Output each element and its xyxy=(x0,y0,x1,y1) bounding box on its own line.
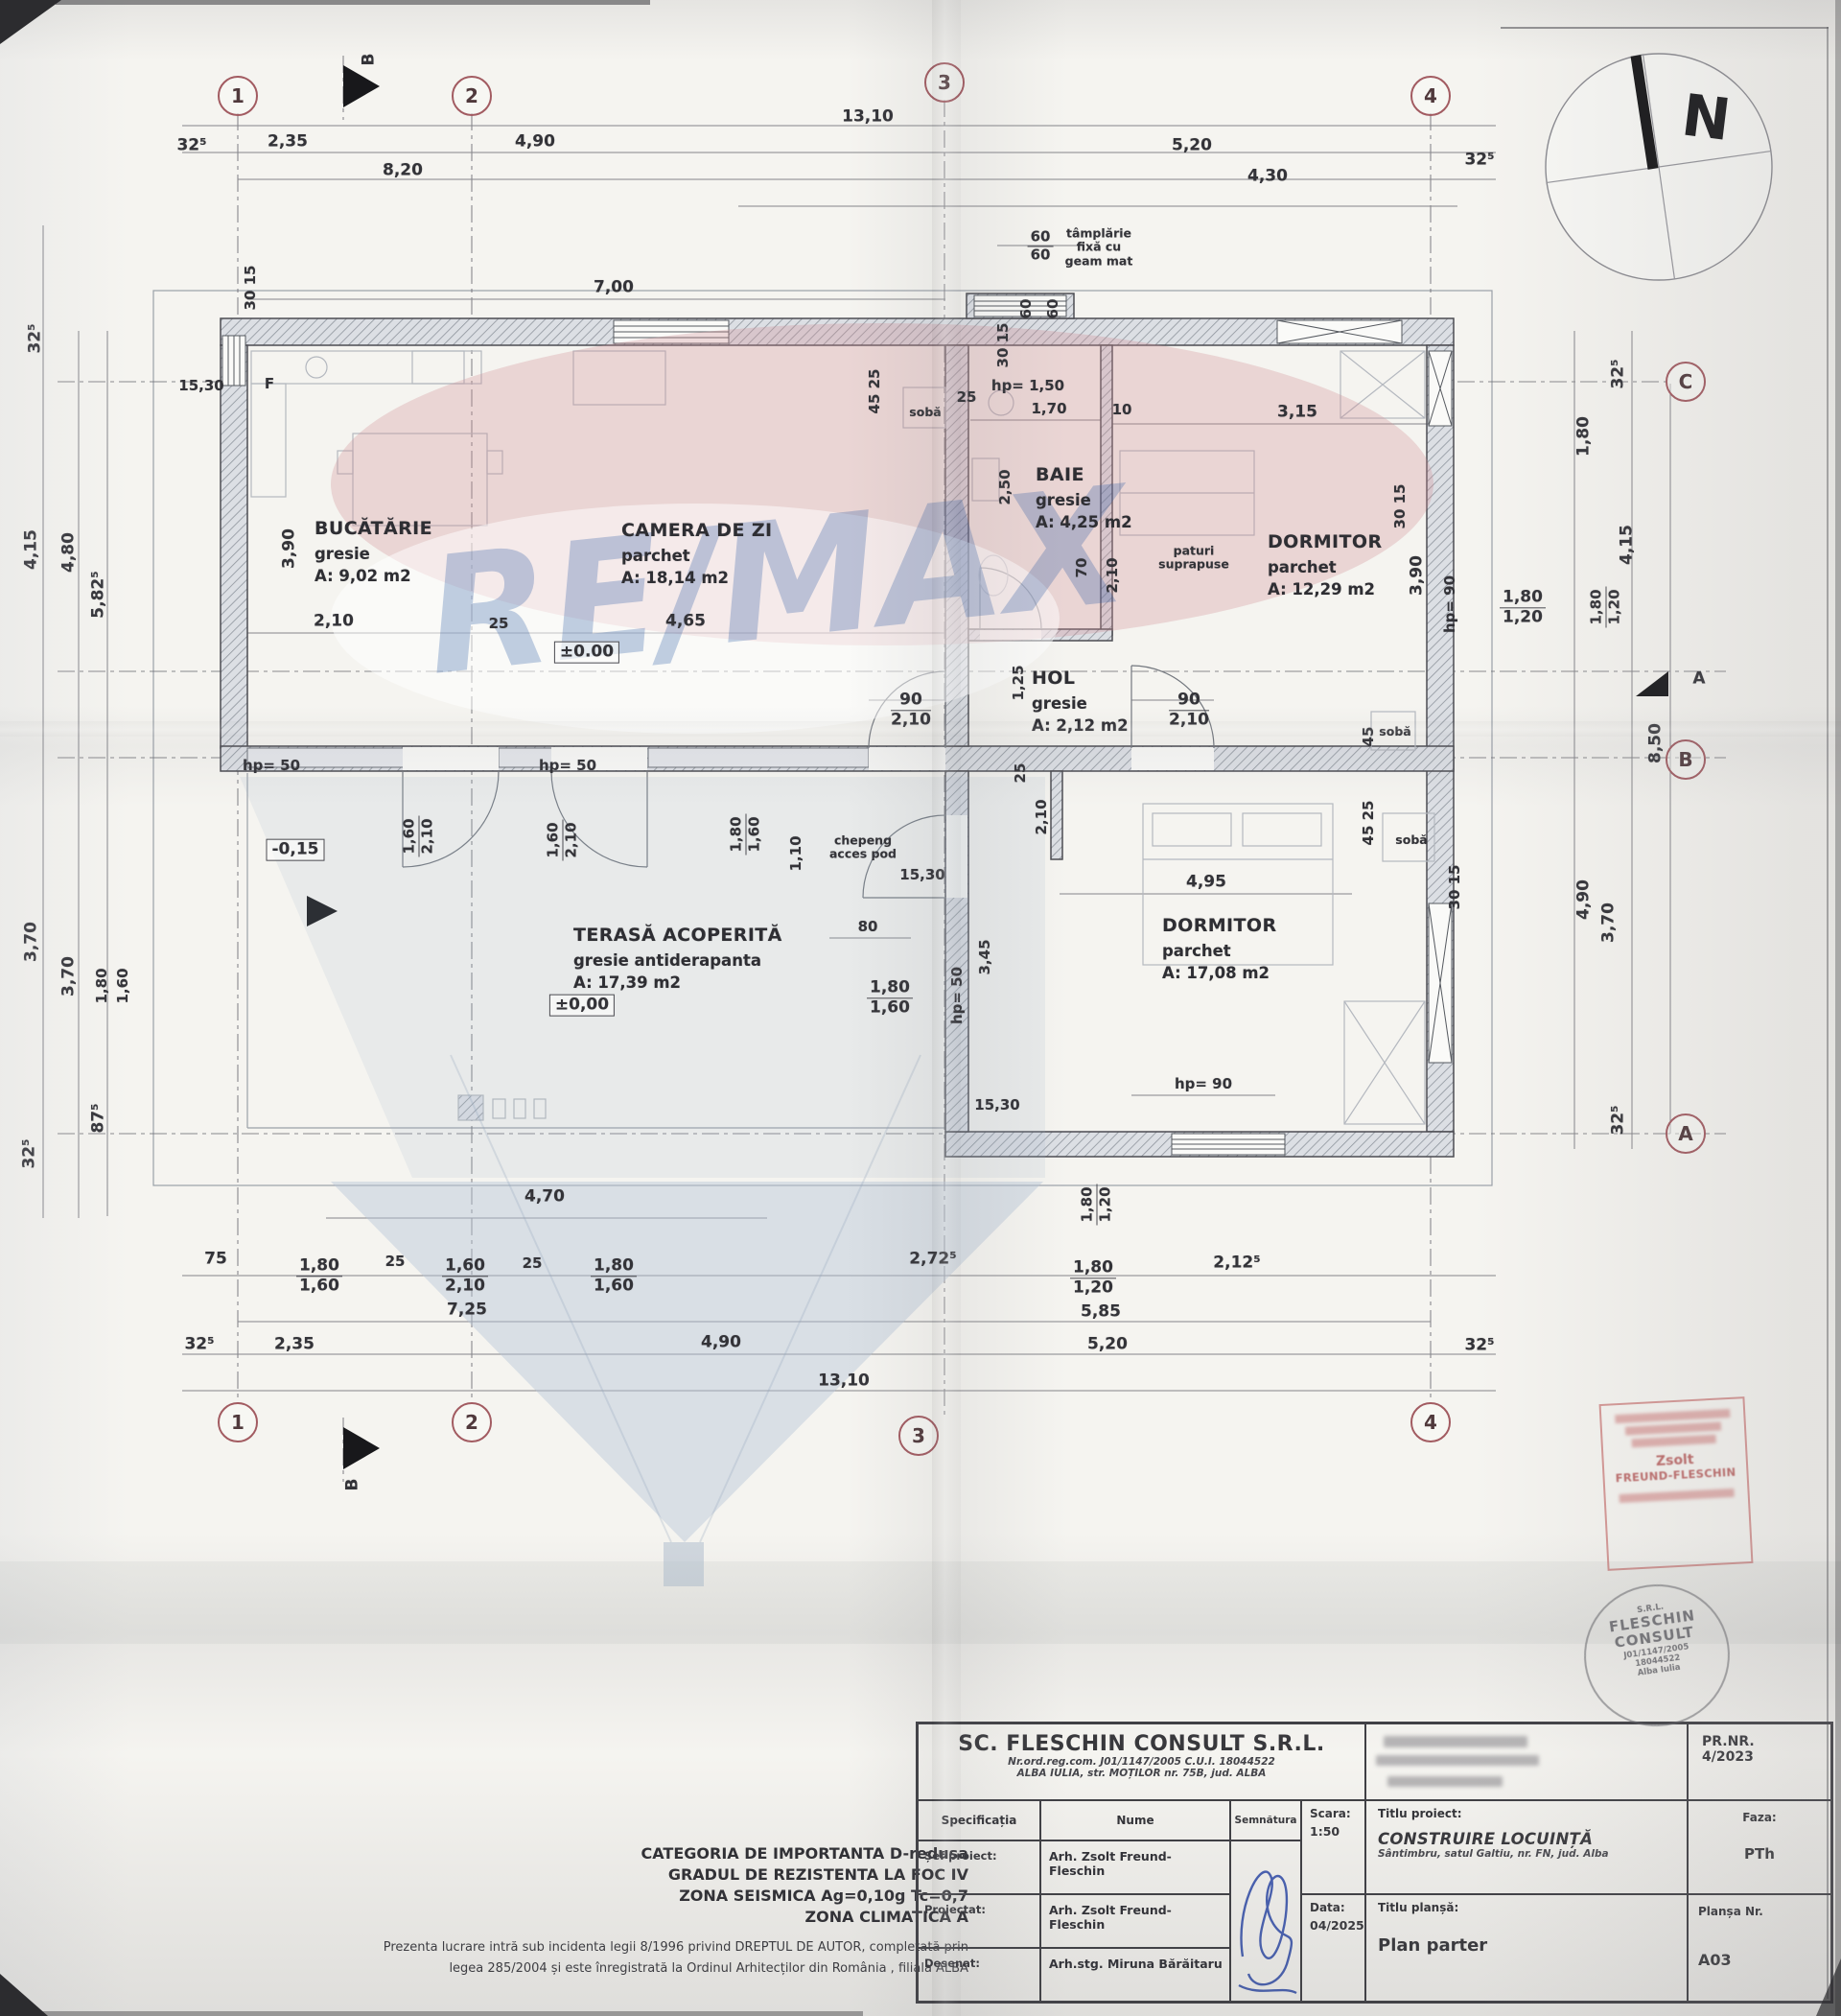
company-name: SC. FLESCHIN CONSULT S.R.L. xyxy=(919,1732,1364,1756)
scale-label: Scara: xyxy=(1310,1807,1364,1820)
dim-label: 7,00 xyxy=(594,279,634,297)
scale-value: 1:50 xyxy=(1310,1824,1364,1839)
dim-label: 3,90 xyxy=(1409,555,1427,596)
general-notes: CATEGORIA DE IMPORTANTA D-redusaGRADUL D… xyxy=(288,1843,968,1980)
dim-label: 2,10 xyxy=(1105,557,1121,593)
note-line: ZONA SEISMICA Ag=0,10g Tc=0,7 xyxy=(288,1886,968,1907)
dim-label: 32⁵ xyxy=(176,137,206,155)
dim-label: 1,80 xyxy=(94,968,110,1003)
dim-label: 25 xyxy=(1013,763,1029,784)
dim-label: 1,801,20 xyxy=(1080,1184,1113,1225)
dim-label: 3,45 xyxy=(977,939,993,974)
dim-label: 1,70 xyxy=(1031,401,1066,417)
dim-label: 2,12⁵ xyxy=(1213,1254,1260,1273)
dim-label: 4,65 xyxy=(665,613,706,631)
dim-label: 32⁵ xyxy=(27,323,45,353)
dim-label: 3,90 xyxy=(281,528,299,569)
axis-bubble-2: 2 xyxy=(452,1402,492,1442)
title-block: SC. FLESCHIN CONSULT S.R.L. Nr.ord.reg.c… xyxy=(916,1722,1833,2004)
axis-bubble-A: A xyxy=(1666,1113,1706,1154)
dim-label: 4,15 xyxy=(1619,525,1637,565)
section-marker-label: A xyxy=(1692,670,1705,689)
dim-label: 75 xyxy=(204,1251,227,1269)
dim-label: 8,50 xyxy=(1647,723,1666,763)
dim-label: 1,801,20 xyxy=(1500,588,1546,625)
dim-label: 13,10 xyxy=(818,1372,870,1391)
dim-label: 25 xyxy=(489,616,509,632)
level-label: ±0.00 xyxy=(554,642,619,664)
dim-label: 1,801,60 xyxy=(591,1256,637,1294)
axis-bubble-B: B xyxy=(1666,739,1706,780)
sheet-title-cell: Titlu planșă: Plan parter xyxy=(1365,1894,1688,2002)
dim-label: 3,70 xyxy=(23,922,41,962)
project-number: 4/2023 xyxy=(1702,1749,1830,1765)
project-number-cell: PR.NR. 4/2023 xyxy=(1688,1723,1831,1800)
dim-label: 8,20 xyxy=(383,162,423,180)
dim-label: 15,30 xyxy=(178,378,223,394)
dim-label: 7,25 xyxy=(447,1301,487,1320)
dim-label: 32⁵ xyxy=(1610,1105,1628,1135)
dim-label: 4,70 xyxy=(524,1188,565,1207)
dim-label: 1,80 xyxy=(1575,416,1594,457)
company-reg: Nr.ord.reg.com. J01/1147/2005 C.U.I. 180… xyxy=(919,1756,1364,1768)
dim-label: 30 15 xyxy=(1447,865,1463,910)
dim-label: 1,801,60 xyxy=(729,813,762,855)
axis-bubble-C: C xyxy=(1666,362,1706,402)
room-label: BUCĂTĂRIEgresieA: 9,02 m2 xyxy=(315,516,432,588)
room-label: DORMITORparchetA: 12,29 m2 xyxy=(1268,529,1382,601)
row-sef-proiect-name: Arh. Zsolt Freund-Fleschin xyxy=(1040,1840,1230,1894)
room-label: CAMERA DE ZIparchetA: 18,14 m2 xyxy=(621,518,773,590)
date-cell: Data: 04/2025 xyxy=(1301,1894,1365,2002)
axis-bubble-4: 4 xyxy=(1410,1402,1451,1442)
phase-cell: Faza: PTh xyxy=(1688,1800,1831,1894)
col-header-semnatura: Semnătura xyxy=(1230,1800,1301,1840)
dim-label: 4,90 xyxy=(1575,879,1594,920)
dim-label: 2,72⁵ xyxy=(909,1251,956,1269)
date-label: Data: xyxy=(1310,1901,1364,1914)
dim-label: 1,602,10 xyxy=(402,815,435,856)
dim-label: 2,10 xyxy=(1034,799,1050,834)
dim-label: hp= 90 xyxy=(1175,1076,1232,1092)
dim-label: 2,35 xyxy=(274,1336,315,1354)
project-address: Sântimbru, satul Galtiu, nr. FN, jud. Al… xyxy=(1378,1848,1687,1860)
dim-label: 4,80 xyxy=(60,532,79,573)
project-title: CONSTRUIRE LOCUINȚĂ xyxy=(1378,1830,1687,1848)
dim-label: 32⁵ xyxy=(184,1336,214,1354)
annotation-stove: sobă xyxy=(1379,725,1410,738)
note-line: GRADUL DE REZISTENTA LA FOC IV xyxy=(288,1864,968,1886)
dim-label: 70 xyxy=(1074,558,1090,578)
scan-edge-bottom xyxy=(0,2011,863,2016)
dim-label: hp= 50 xyxy=(949,967,966,1024)
dim-label: 4,90 xyxy=(701,1334,741,1352)
dim-label: 80 xyxy=(858,919,878,935)
signature-cell xyxy=(1230,1840,1301,2002)
dim-label: 902,10 xyxy=(891,691,931,728)
dim-label: 5,20 xyxy=(1172,137,1212,155)
dim-label: 25 xyxy=(523,1255,543,1272)
dim-label: 45 xyxy=(1361,727,1377,747)
scale-cell: Scara: 1:50 xyxy=(1301,1800,1365,1894)
room-label: DORMITORparchetA: 17,08 m2 xyxy=(1162,913,1276,985)
dim-label: hp= 1,50 xyxy=(991,378,1064,394)
axis-bubble-3: 3 xyxy=(924,62,965,103)
dim-label: 45 25 xyxy=(1361,801,1377,846)
dim-label: 30 15 xyxy=(243,266,259,311)
section-marker-label: B xyxy=(344,1479,362,1491)
axis-bubble-4: 4 xyxy=(1410,76,1451,116)
scan-edge-right xyxy=(1835,0,1841,2016)
notes-bold-lines: CATEGORIA DE IMPORTANTA D-redusaGRADUL D… xyxy=(288,1843,968,1928)
dim-label: 10 xyxy=(1112,402,1132,418)
dim-label: 3,70 xyxy=(1600,903,1619,943)
dim-label: 25 xyxy=(385,1254,406,1270)
dim-label: 5,85 xyxy=(1081,1303,1121,1322)
company-address: ALBA IULIA, str. MOȚILOR nr. 75B, jud. A… xyxy=(919,1768,1364,1779)
dim-label: 1,60 xyxy=(115,968,131,1003)
scanned-floor-plan-sheet: RE/MAX N 13,1032⁵2,354,905,2032⁵8,204,30… xyxy=(0,0,1841,2016)
dim-label: 1,801,20 xyxy=(1070,1258,1116,1296)
sheet-number: A03 xyxy=(1698,1951,1830,1969)
dim-label: 1,801,60 xyxy=(296,1256,342,1294)
annotation-window-note: tâmplăriefixă cugeam mat xyxy=(1065,226,1133,268)
dim-label: hp= 50 xyxy=(539,758,596,774)
row-sef-proiect-role: Șef proiect: xyxy=(918,1840,1040,1894)
architect-stamp: Zsolt FREUND-FLESCHIN xyxy=(1599,1396,1754,1571)
dim-label: 2,50 xyxy=(997,469,1014,504)
dim-label: 1,602,10 xyxy=(546,819,579,860)
dim-label: 87⁵ xyxy=(90,1103,108,1133)
project-title-cell: Titlu proiect: CONSTRUIRE LOCUINȚĂ Sânti… xyxy=(1365,1800,1688,1894)
dim-label: 60 xyxy=(1018,299,1035,319)
annotation-bunk-beds: paturisuprapuse xyxy=(1158,545,1229,573)
dim-label: 5,82⁵ xyxy=(90,571,108,618)
date-value: 04/2025 xyxy=(1310,1918,1364,1933)
sheet-title: Plan parter xyxy=(1378,1935,1687,1956)
dim-label: 13,10 xyxy=(842,108,894,127)
note-line: ZONA CLIMATICA A xyxy=(288,1907,968,1928)
room-label: BAIEgresieA: 4,25 m2 xyxy=(1036,462,1132,534)
sheet-title-label: Titlu planșă: xyxy=(1378,1901,1687,1914)
dim-label: 4,90 xyxy=(515,133,555,152)
annotation-stove: sobă xyxy=(909,406,941,419)
dimension-layer: 13,1032⁵2,354,905,2032⁵8,204,306060tâmpl… xyxy=(0,0,1841,2016)
row-proiectat-name: Arh. Zsolt Freund-Fleschin xyxy=(1040,1894,1230,1948)
col-header-specificatia: Specificația xyxy=(918,1800,1040,1840)
row-desenat-role: Desenat: xyxy=(918,1948,1040,2002)
notes-small-lines: Prezenta lucrare intră sub incidenta leg… xyxy=(288,1937,968,1980)
level-label: -0,15 xyxy=(267,839,325,861)
dim-label: 4,95 xyxy=(1186,874,1226,892)
dim-label: 4,30 xyxy=(1247,168,1288,186)
dim-label: 32⁵ xyxy=(21,1138,39,1168)
dim-label: 32⁵ xyxy=(1464,152,1494,170)
sheet-number-label: Planșa Nr. xyxy=(1698,1905,1830,1918)
dim-label: 3,15 xyxy=(1277,404,1317,422)
annotation-attic-hatch: chepengacces pod xyxy=(829,834,897,862)
dim-label: 25 xyxy=(957,389,977,406)
signature-scribble xyxy=(1231,1841,1302,2003)
dim-label: hp= 90 xyxy=(1442,575,1458,633)
dim-label: 30 15 xyxy=(1392,484,1409,529)
section-marker-label: B xyxy=(361,54,379,66)
room-label: HOLgresieA: 2,12 m2 xyxy=(1032,666,1129,738)
dim-label: 32⁵ xyxy=(1610,359,1628,388)
dim-label: 2,10 xyxy=(314,613,354,631)
col-header-nume: Nume xyxy=(1040,1800,1230,1840)
dim-label: 1,25 xyxy=(1011,665,1027,700)
phase-label: Faza: xyxy=(1689,1811,1830,1824)
dim-label: 15,30 xyxy=(974,1097,1019,1113)
dim-label: 30 15 xyxy=(995,323,1012,368)
phase-value: PTh xyxy=(1689,1845,1830,1863)
dim-label: 2,35 xyxy=(268,133,308,152)
dim-label: 902,10 xyxy=(1169,691,1209,728)
level-label: ±0,00 xyxy=(549,995,615,1017)
dim-label: 45 25 xyxy=(867,369,883,414)
row-proiectat-role: Proiectat: xyxy=(918,1894,1040,1948)
title-block-stamp-area xyxy=(1365,1723,1688,1800)
note-line: CATEGORIA DE IMPORTANTA D-redusa xyxy=(288,1843,968,1864)
dim-label: 60 xyxy=(1045,299,1061,319)
axis-bubble-1: 1 xyxy=(218,1402,258,1442)
annotation-stove: sobă xyxy=(1395,833,1427,847)
note-line: Prezenta lucrare intră sub incidenta leg… xyxy=(288,1937,968,1958)
dim-label: 1,801,60 xyxy=(867,978,913,1016)
dim-label: 4,15 xyxy=(23,529,41,570)
project-title-label: Titlu proiect: xyxy=(1378,1807,1687,1820)
dim-label: 5,20 xyxy=(1087,1336,1128,1354)
dim-label: hp= 50 xyxy=(243,758,300,774)
axis-bubble-1: 1 xyxy=(218,76,258,116)
axis-bubble-3: 3 xyxy=(898,1416,939,1456)
scan-edge-top xyxy=(56,0,650,5)
dim-label: 6060 xyxy=(1028,229,1054,263)
sheet-number-cell: Planșa Nr. A03 xyxy=(1688,1894,1831,2002)
note-line: legea 285/2004 și este înregistrată la O… xyxy=(288,1958,968,1980)
axis-bubble-2: 2 xyxy=(452,76,492,116)
dim-label: 1,801,20 xyxy=(1589,586,1622,627)
dim-label: F xyxy=(265,376,274,392)
dim-label: 15,30 xyxy=(899,867,944,883)
row-desenat-name: Arh.stg. Miruna Bărăitaru xyxy=(1040,1948,1230,2002)
project-number-label: PR.NR. xyxy=(1702,1734,1830,1749)
dim-label: 32⁵ xyxy=(1464,1337,1494,1355)
company-block: SC. FLESCHIN CONSULT S.R.L. Nr.ord.reg.c… xyxy=(918,1723,1365,1800)
dim-label: 1,10 xyxy=(788,835,804,871)
dim-label: 1,602,10 xyxy=(442,1256,488,1294)
room-label: TERASĂ ACOPERITĂgresie antiderapantaA: 1… xyxy=(573,923,782,995)
dim-label: 3,70 xyxy=(60,956,79,996)
